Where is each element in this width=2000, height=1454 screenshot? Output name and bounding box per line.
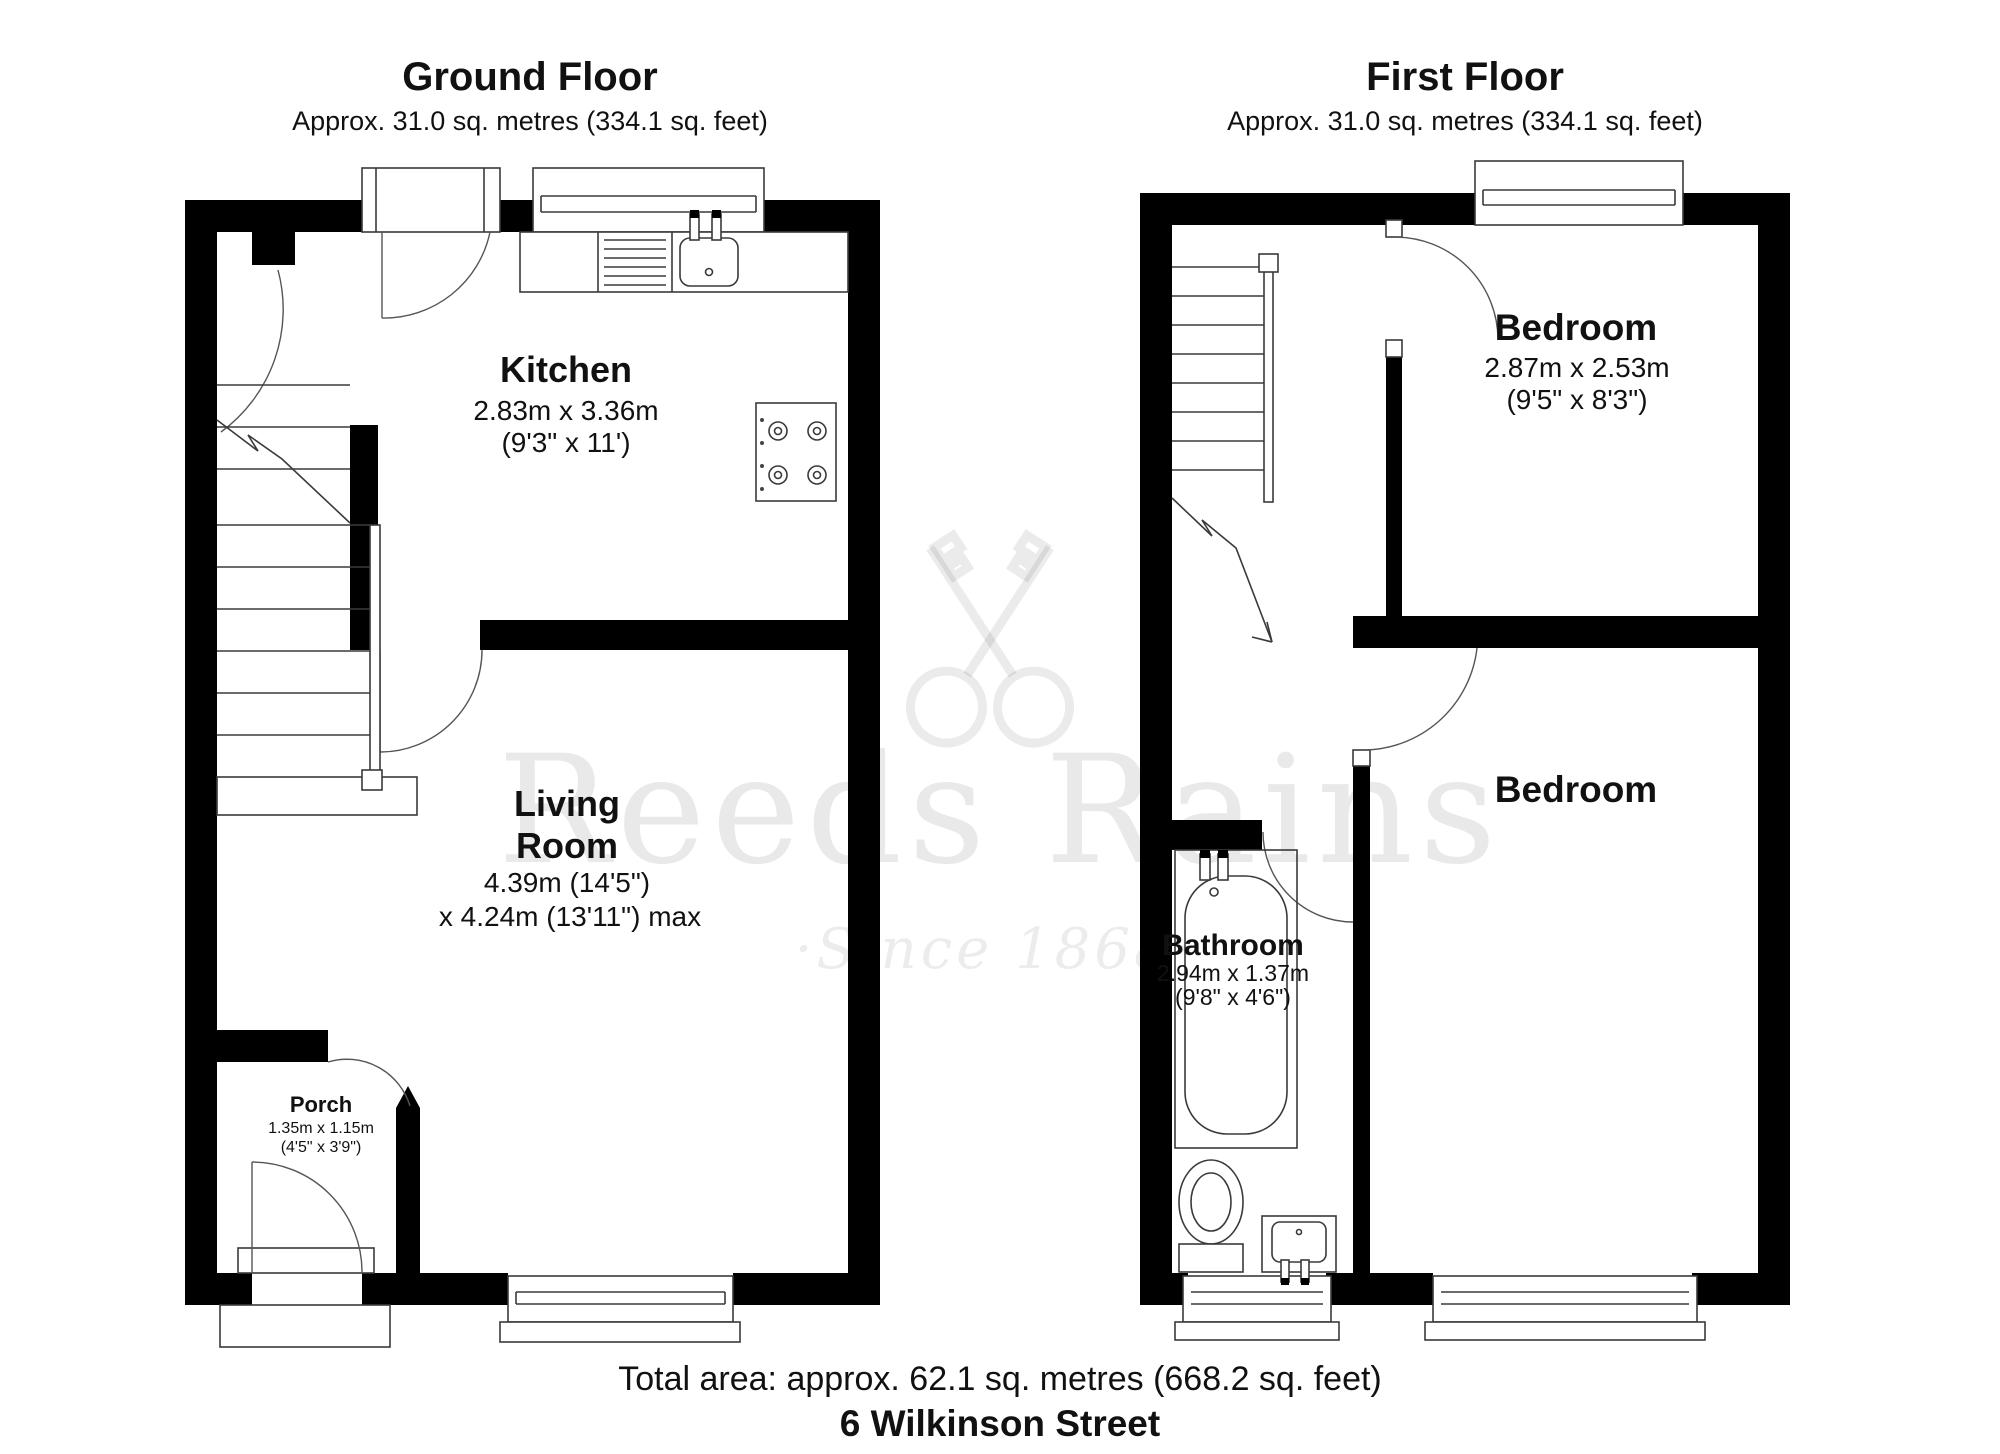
door-jamb [1386, 340, 1402, 357]
stairs-newel-post [362, 770, 382, 790]
bathroom-window [1175, 1276, 1339, 1340]
stairs-break-line [217, 420, 350, 523]
porch-wall-tip [396, 1086, 420, 1108]
hob-icon [756, 403, 836, 501]
basin-icon [1262, 1216, 1336, 1285]
kitchen-dims-imperial: (9'3" x 11') [501, 427, 630, 458]
address-label: 6 Wilkinson Street [840, 1403, 1160, 1444]
front-door [220, 1162, 390, 1347]
floorplan-canvas: Reeds Rains ·Since 1868· [0, 0, 2000, 1454]
door-jamb [1386, 220, 1402, 237]
front-door-step [220, 1305, 390, 1347]
kitchen-living-swing-arc [380, 650, 482, 752]
hall-door-swing-arc [221, 270, 283, 432]
first-floor-title: First Floor [1366, 55, 1564, 99]
bathroom-dims-metric: 2.94m x 1.37m [1157, 960, 1309, 986]
back-door-swing-arc [382, 232, 490, 318]
bedroom1-dims-imperial: (9'5" x 8'3") [1506, 384, 1647, 415]
porch-dims-imperial: (4'5" x 3'9") [281, 1139, 362, 1156]
stairs-railing [1264, 262, 1273, 502]
bedroom1-dims-metric: 2.87m x 2.53m [1484, 352, 1669, 383]
kitchen-living-door [380, 650, 482, 752]
kitchen-label: Kitchen [500, 349, 632, 390]
stairs-bottom-step [217, 777, 417, 815]
living-room-label-line1: Living [514, 783, 620, 824]
stairs-railing [370, 525, 380, 773]
first-floor-subtitle: Approx. 31.0 sq. metres (334.1 sq. feet) [1227, 106, 1703, 136]
back-door [362, 168, 500, 318]
ground-floor-title: Ground Floor [402, 55, 658, 99]
crossed-keys-icon [897, 528, 1084, 757]
total-area-label: Total area: approx. 62.1 sq. metres (668… [618, 1360, 1382, 1398]
door-jamb [1353, 750, 1370, 766]
stairs-newel-post [1259, 254, 1278, 272]
kitchen-dims-metric: 2.83m x 3.36m [473, 395, 658, 426]
ground-floor-subtitle: Approx. 31.0 sq. metres (334.1 sq. feet) [292, 106, 768, 136]
bathroom-dims-imperial: (9'8" x 4'6") [1175, 984, 1291, 1010]
bedroom1-window [1475, 161, 1683, 225]
bedroom2-label: Bedroom [1495, 769, 1657, 810]
living-room-dims-line1: 4.39m (14'5") [484, 867, 650, 898]
living-room-label-line2: Room [516, 825, 618, 866]
kitchen-window [533, 168, 764, 232]
ground-floor-stairs [217, 385, 417, 815]
stairs-direction-arrow [1252, 622, 1272, 642]
first-floor-stairs [1172, 254, 1278, 642]
living-room-dims-line2: x 4.24m (13'11") max [439, 901, 701, 932]
toilet-icon [1179, 1160, 1243, 1272]
porch-label: Porch [290, 1092, 352, 1117]
porch-dims-metric: 1.35m x 1.15m [268, 1120, 374, 1137]
stairs-break-line [1172, 498, 1272, 642]
bedroom2-window [1425, 1276, 1705, 1340]
bathroom-label: Bathroom [1162, 929, 1304, 962]
floorplan-page: Reeds Rains ·Since 1868· [0, 0, 2000, 1454]
living-room-window [500, 1276, 740, 1342]
bedroom1-door-swing-arc [1395, 237, 1498, 340]
bedroom1-label: Bedroom [1495, 307, 1657, 348]
